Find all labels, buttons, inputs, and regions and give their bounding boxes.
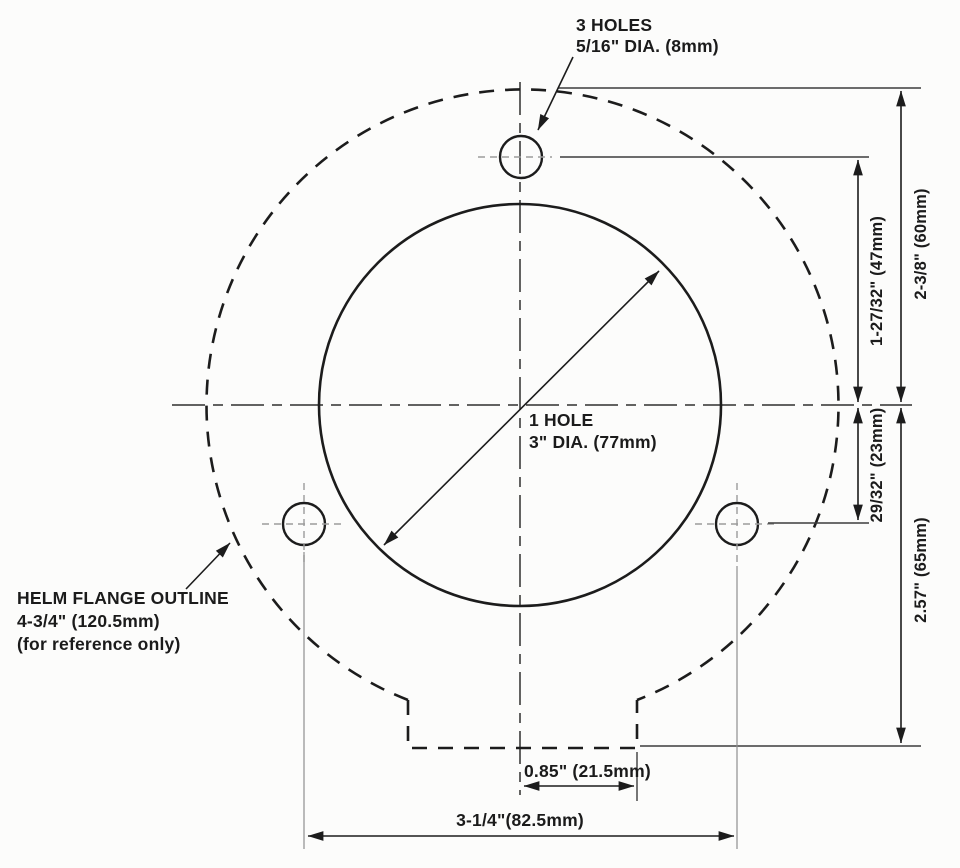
flange-label-line1: HELM FLANGE OUTLINE xyxy=(17,588,229,608)
flange-label-line2: 4-3/4" (120.5mm) xyxy=(17,611,160,631)
dim-label-centerline-to-bottom: 2.57" (65mm) xyxy=(912,517,930,623)
helm-flange-outline-dashed-circle xyxy=(207,89,839,700)
dim-label-flange-top-to-centerline: 2-3/8" (60mm) xyxy=(912,188,930,299)
dim-label-lower-holes-spacing: 3-1/4"(82.5mm) xyxy=(456,810,584,830)
center-hole-label-line2: 3" DIA. (77mm) xyxy=(529,432,657,452)
dim-label-tab-width: 0.85" (21.5mm) xyxy=(524,761,651,781)
flange-bottom-tab-outline xyxy=(408,700,637,748)
dim-label-top-hole-to-centerline: 1-27/32" (47mm) xyxy=(868,216,886,346)
drawing-canvas: 3 HOLES 5/16" DIA. (8mm) 1 HOLE 3" DIA. … xyxy=(0,0,960,868)
dim-label-centerline-to-lower-holes: 29/32" (23mm) xyxy=(868,408,886,523)
helm-flange-drilling-template-drawing: 3 HOLES 5/16" DIA. (8mm) 1 HOLE 3" DIA. … xyxy=(0,0,960,868)
dim-line-center-hole-diameter xyxy=(384,271,659,545)
flange-label-line3: (for reference only) xyxy=(17,634,180,654)
leader-arrow-flange-outline xyxy=(186,543,230,589)
center-hole-label-line1: 1 HOLE xyxy=(529,410,593,430)
bolt-holes-label-line1: 3 HOLES xyxy=(576,15,652,35)
bolt-holes-label-line2: 5/16" DIA. (8mm) xyxy=(576,36,719,56)
